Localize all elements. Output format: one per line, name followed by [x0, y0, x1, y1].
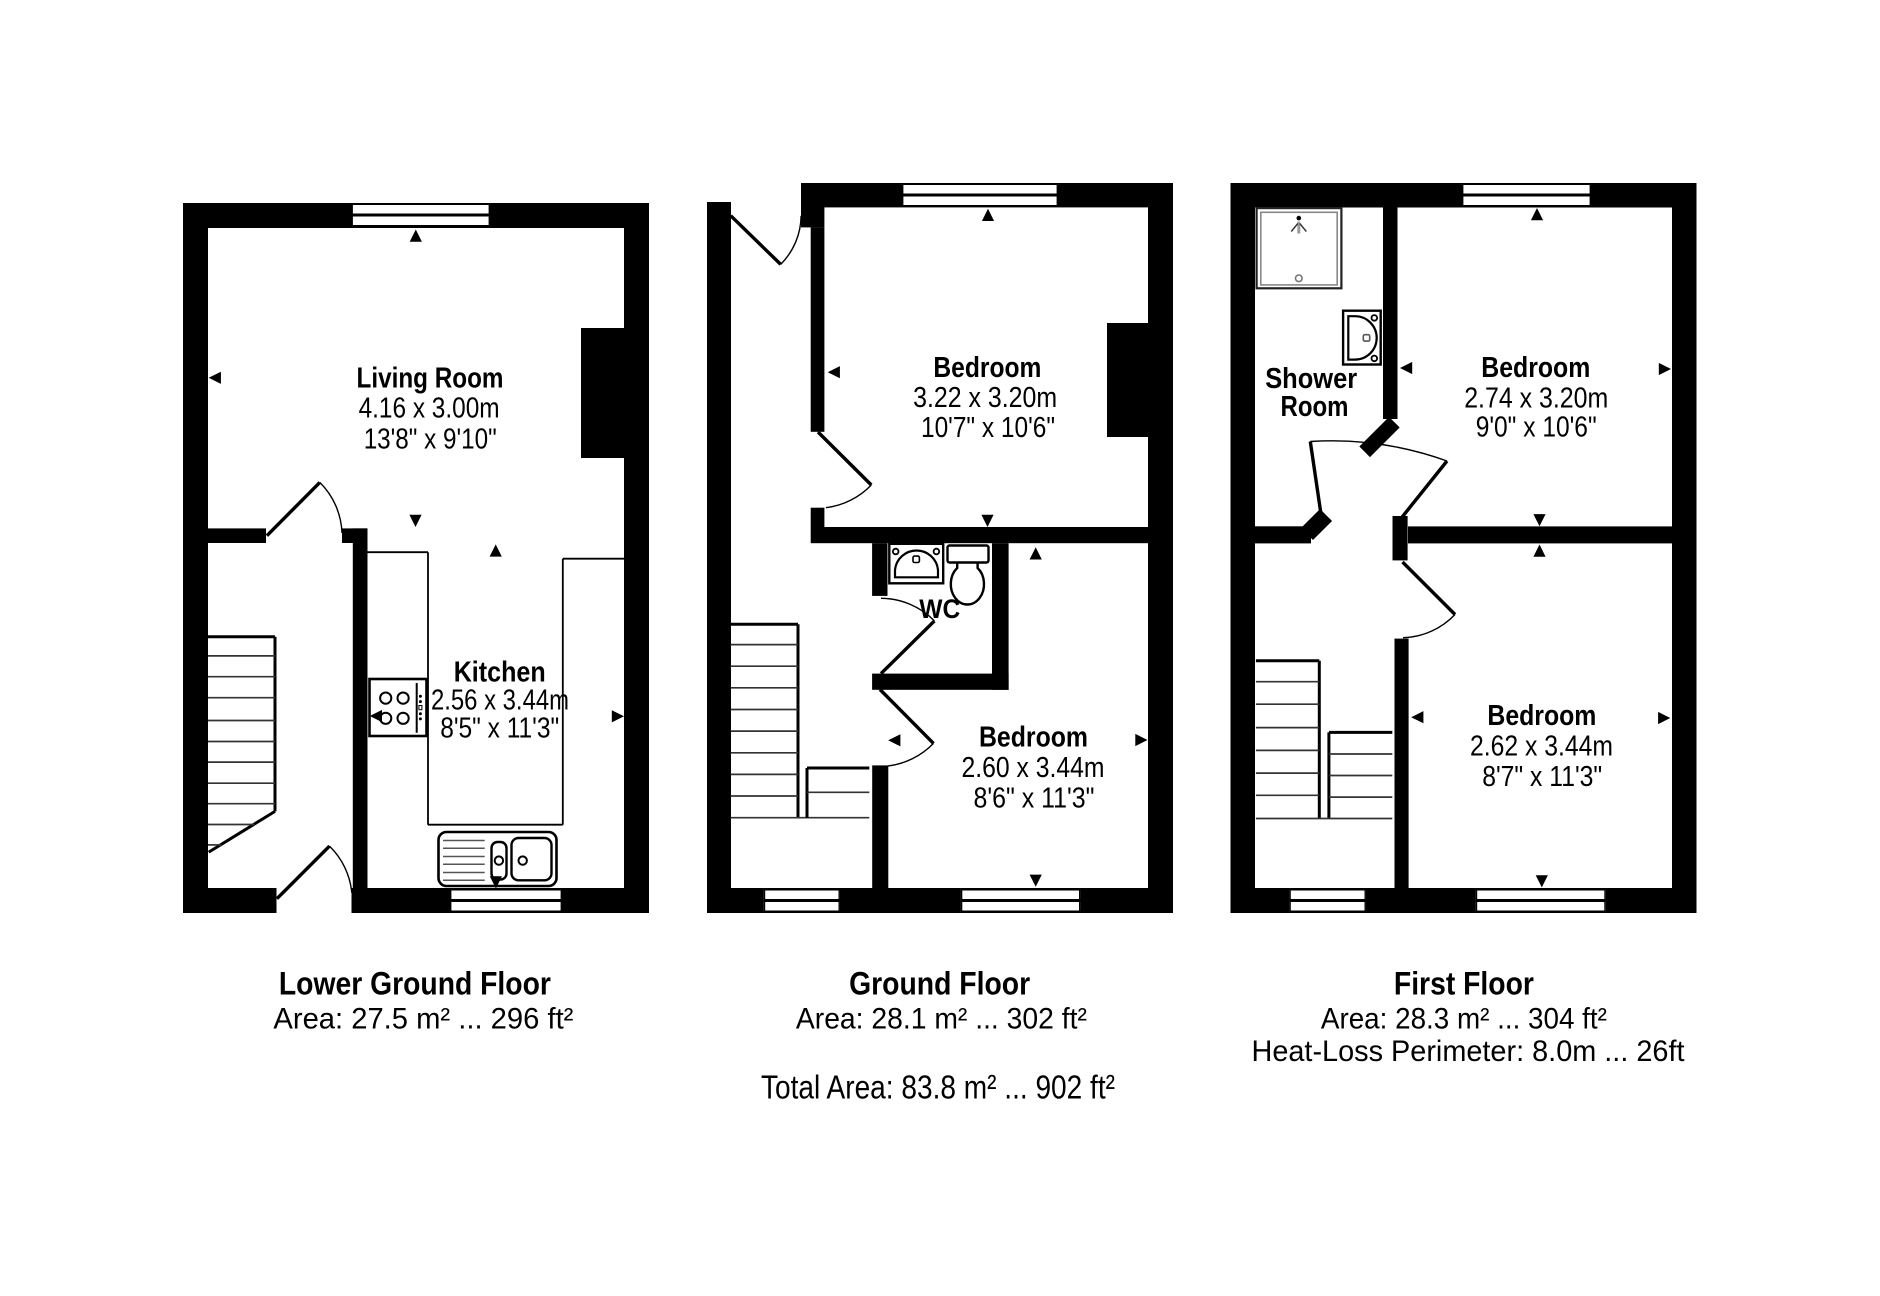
svg-text:8'6" x 11'3": 8'6" x 11'3": [974, 783, 1095, 815]
svg-text:Room: Room: [1281, 391, 1349, 423]
svg-text:Heat-Loss Perimeter: 8.0m ...: Heat-Loss Perimeter: 8.0m ... 26ft: [1252, 1035, 1685, 1068]
svg-text:8'5" x 11'3": 8'5" x 11'3": [440, 713, 559, 745]
svg-text:Area: 27.5 m² ... 296 ft²: Area: 27.5 m² ... 296 ft²: [273, 1002, 573, 1035]
svg-text:Ground Floor: Ground Floor: [849, 965, 1030, 1001]
svg-text:13'8" x 9'10": 13'8" x 9'10": [364, 423, 497, 455]
svg-text:2.62 x 3.44m: 2.62 x 3.44m: [1470, 731, 1613, 763]
svg-text:Bedroom: Bedroom: [1481, 352, 1590, 384]
svg-text:Bedroom: Bedroom: [933, 352, 1041, 384]
svg-text:4.16 x 3.00m: 4.16 x 3.00m: [359, 393, 500, 425]
svg-text:Lower Ground Floor: Lower Ground Floor: [279, 965, 551, 1001]
svg-text:8'7" x 11'3": 8'7" x 11'3": [1482, 761, 1602, 793]
svg-text:2.74 x 3.20m: 2.74 x 3.20m: [1464, 383, 1608, 415]
svg-text:WC: WC: [919, 594, 960, 624]
svg-text:2.60 x 3.44m: 2.60 x 3.44m: [962, 752, 1105, 784]
svg-text:Total Area: 83.8 m² ... 902 ft: Total Area: 83.8 m² ... 902 ft²: [761, 1069, 1115, 1106]
svg-text:Living Room: Living Room: [357, 363, 504, 395]
svg-text:First Floor: First Floor: [1394, 965, 1534, 1001]
svg-text:Bedroom: Bedroom: [979, 722, 1088, 754]
svg-text:Area: 28.1 m² ... 302 ft²: Area: 28.1 m² ... 302 ft²: [796, 1002, 1087, 1035]
svg-text:10'7" x 10'6": 10'7" x 10'6": [921, 412, 1055, 444]
svg-text:9'0" x 10'6": 9'0" x 10'6": [1476, 412, 1597, 444]
svg-text:3.22 x 3.20m: 3.22 x 3.20m: [913, 382, 1057, 414]
svg-text:Area: 28.3 m² ... 304 ft²: Area: 28.3 m² ... 304 ft²: [1321, 1002, 1607, 1035]
svg-text:Bedroom: Bedroom: [1487, 700, 1596, 732]
